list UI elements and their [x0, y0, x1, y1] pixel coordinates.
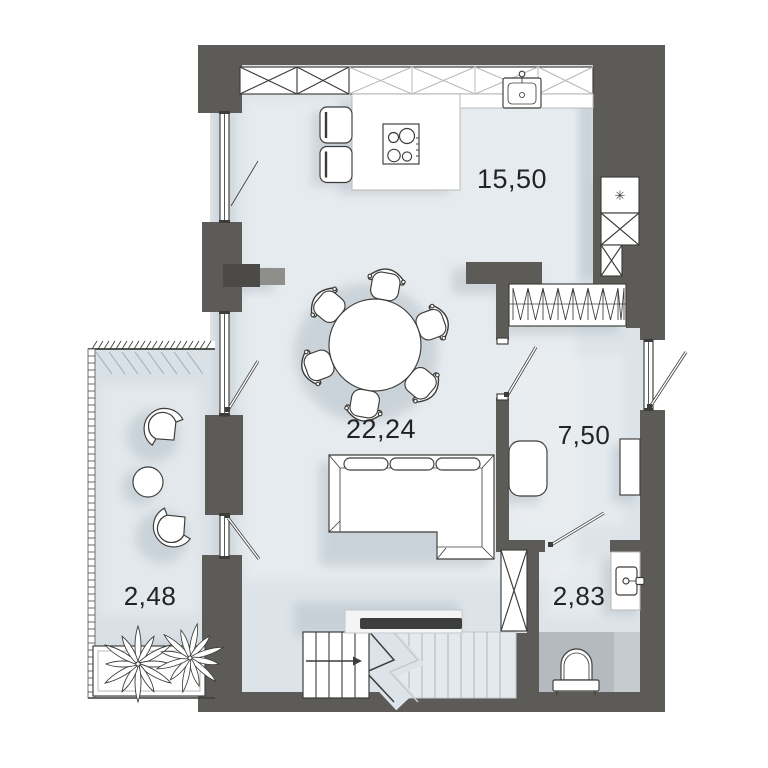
floor-plan-drawing: ✳	[0, 0, 768, 768]
bedroom-exterior-door	[644, 339, 686, 411]
fridge-snowflake-icon: ✳	[615, 188, 626, 203]
area-label-balcony: 2,48	[108, 581, 192, 612]
area-label-bedroom: 7,50	[542, 420, 626, 451]
area-label-living: 22,24	[339, 414, 423, 445]
area-label-kitchen: 15,50	[470, 164, 554, 195]
wardrobe	[509, 284, 626, 326]
washing-machine	[501, 550, 527, 631]
tv-console	[345, 610, 462, 633]
dining-table	[329, 299, 421, 391]
floor-plan: ✳	[0, 0, 768, 768]
stove	[383, 124, 419, 164]
balcony-side-table	[133, 467, 163, 497]
bar-stool	[320, 107, 352, 143]
area-label-bathroom: 2,83	[537, 581, 621, 612]
tv	[360, 618, 462, 629]
staircase	[303, 628, 516, 702]
bar-stool	[320, 147, 352, 183]
